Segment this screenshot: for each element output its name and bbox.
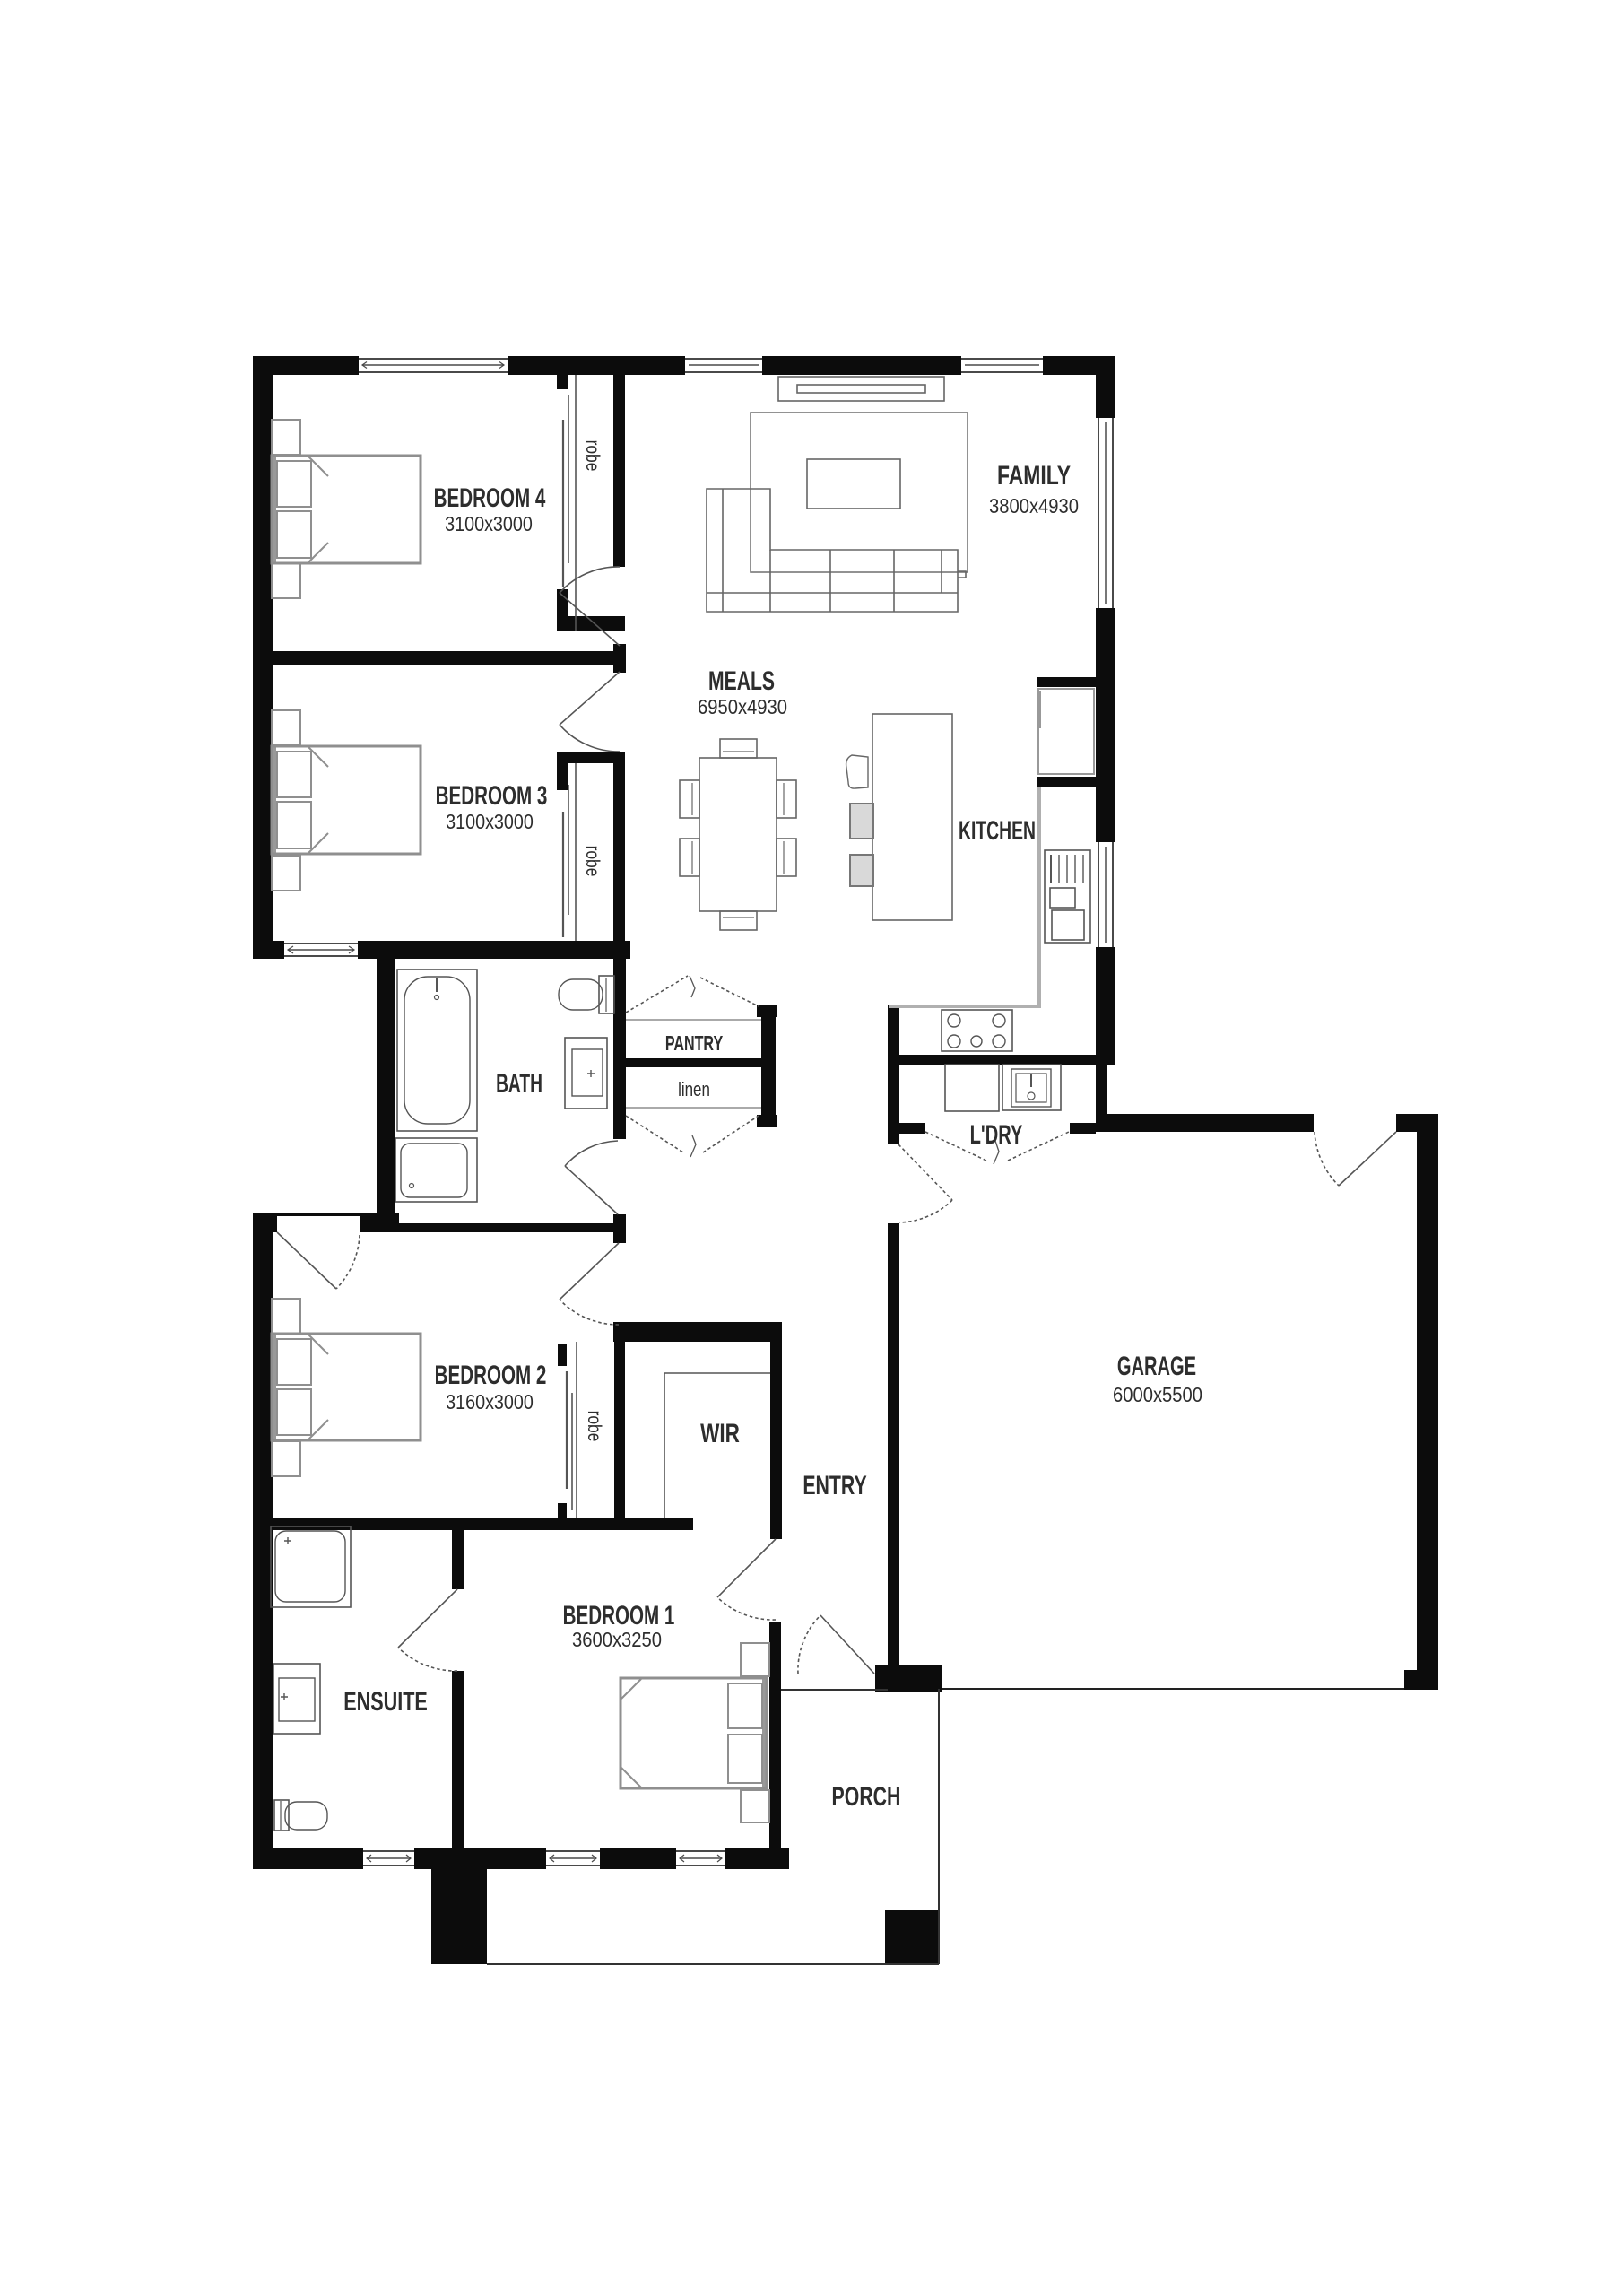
svg-text:6000x5500: 6000x5500: [1113, 1383, 1202, 1407]
svg-text:ENSUITE: ENSUITE: [343, 1685, 428, 1716]
svg-text:linen: linen: [678, 1079, 710, 1101]
svg-text:BEDROOM 4: BEDROOM 4: [434, 483, 546, 513]
svg-text:L'DRY: L'DRY: [970, 1120, 1023, 1150]
svg-text:3160x3000: 3160x3000: [446, 1389, 534, 1413]
svg-text:BEDROOM 2: BEDROOM 2: [435, 1361, 547, 1390]
svg-text:BEDROOM 1: BEDROOM 1: [563, 1601, 675, 1631]
svg-text:WIR: WIR: [700, 1418, 740, 1448]
svg-text:3800x4930: 3800x4930: [989, 494, 1079, 518]
svg-text:MEALS: MEALS: [708, 667, 775, 696]
svg-text:FAMILY: FAMILY: [997, 460, 1071, 491]
svg-text:robe: robe: [584, 1411, 604, 1442]
svg-text:robe: robe: [582, 846, 603, 877]
svg-text:BATH: BATH: [496, 1069, 542, 1099]
svg-text:3100x3000: 3100x3000: [445, 511, 533, 535]
svg-text:KITCHEN: KITCHEN: [959, 816, 1036, 846]
svg-text:BEDROOM 3: BEDROOM 3: [436, 781, 548, 811]
svg-text:3600x3250: 3600x3250: [572, 1628, 662, 1652]
svg-text:3100x3000: 3100x3000: [446, 809, 534, 833]
svg-text:6950x4930: 6950x4930: [698, 695, 787, 719]
svg-text:robe: robe: [582, 440, 603, 472]
svg-text:PORCH: PORCH: [832, 1780, 901, 1812]
svg-text:GARAGE: GARAGE: [1117, 1352, 1196, 1381]
svg-text:PANTRY: PANTRY: [665, 1032, 723, 1055]
svg-text:ENTRY: ENTRY: [803, 1469, 866, 1500]
